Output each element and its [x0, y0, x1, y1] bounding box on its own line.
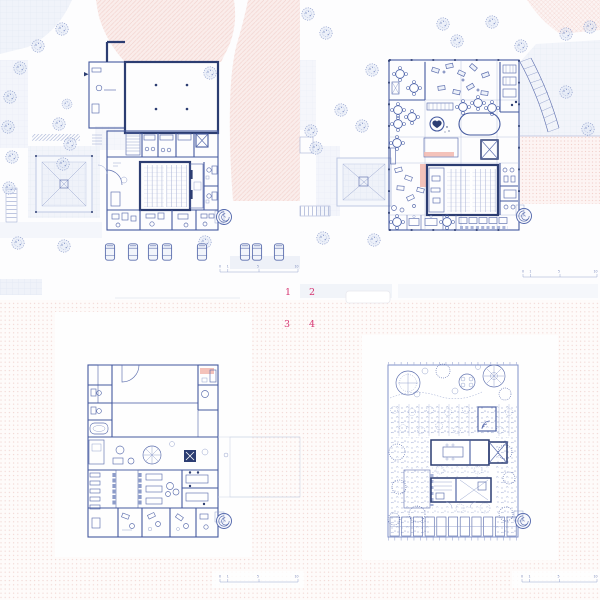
- plan-2-label: 2: [309, 287, 315, 298]
- scale-tick: 0: [522, 270, 524, 274]
- scale-tick: 1: [529, 575, 531, 579]
- plan-3-label: 3: [284, 319, 290, 330]
- plan-1-label: 1: [285, 287, 291, 298]
- scale-tick: 5: [558, 575, 560, 579]
- plan-4-roof-garden: [388, 364, 531, 540]
- scale-tick: 0: [521, 575, 523, 579]
- scale-tick: 10: [295, 575, 299, 579]
- scale-tick: 10: [594, 575, 598, 579]
- scale-tick: 1: [529, 270, 531, 274]
- scale-tick: 1: [227, 575, 229, 579]
- scale-tick: 1: [227, 265, 229, 269]
- floor-plan-drawing: 1 2 3 4 0 1 5 10 0 1 5 10 0 1 5 10 0 1 5…: [0, 0, 600, 600]
- scale-tick: 0: [219, 575, 221, 579]
- scale-tick: 5: [257, 265, 259, 269]
- scale-tick: 10: [295, 265, 299, 269]
- plan-4-label: 4: [309, 319, 315, 330]
- courtyard-grid: [337, 158, 391, 206]
- scale-tick: 0: [219, 265, 221, 269]
- scale-tick: 5: [257, 575, 259, 579]
- scale-tick: 10: [594, 270, 598, 274]
- hedge-band: [389, 404, 517, 436]
- pink-dot-lawn: [520, 136, 600, 204]
- scale-tick: 5: [558, 270, 560, 274]
- floor-plan-sheet: 1 2 3 4 0 1 5 10 0 1 5 10 0 1 5 10 0 1 5…: [0, 0, 600, 600]
